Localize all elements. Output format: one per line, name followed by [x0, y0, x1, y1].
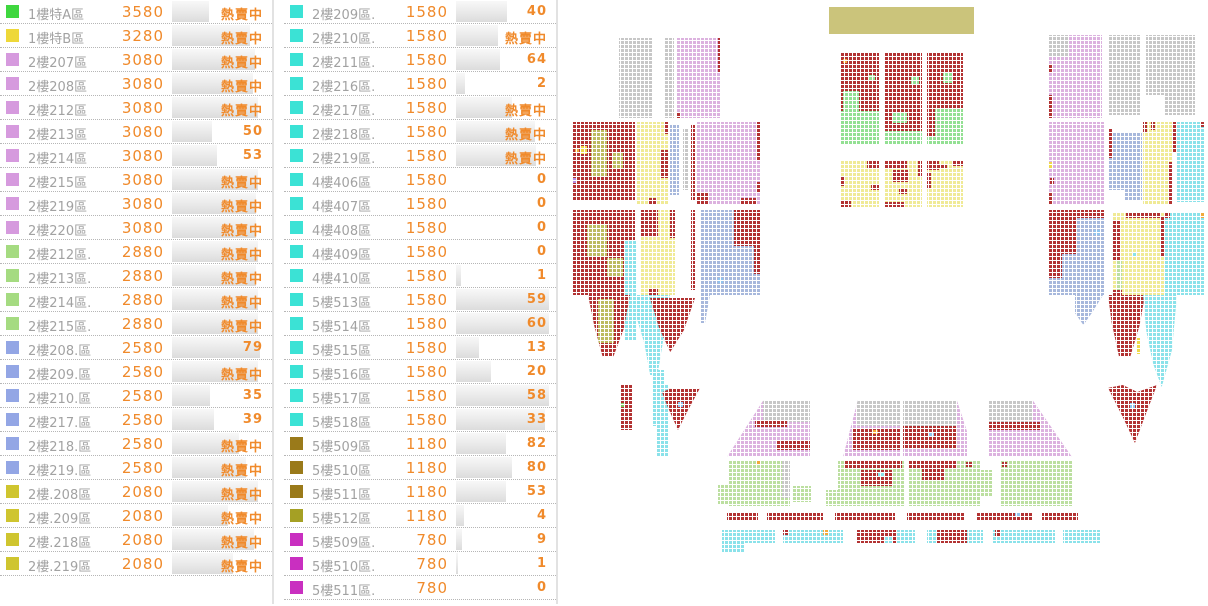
seat-block-overlay: [1200, 212, 1204, 218]
seat-block-overlay: [587, 224, 607, 256]
seat-block-overlay: [893, 170, 909, 182]
seat-block-overlay: [937, 530, 967, 543]
seat-block[interactable]: [677, 38, 721, 118]
seat-selection-page: { "colors":{ "swatch":{ "green":"#3fd73f…: [0, 0, 1208, 606]
seat-block[interactable]: [700, 210, 760, 295]
seat-block-overlay: [1169, 162, 1173, 205]
seat-block[interactable]: [1137, 338, 1141, 354]
seat-block-overlay: [613, 152, 623, 168]
seat-block-overlay: [1015, 512, 1020, 517]
seat-block-overlay: [1112, 290, 1122, 295]
seat-block-overlay: [1200, 122, 1205, 127]
seat-block[interactable]: [722, 530, 775, 543]
seat-block-overlay: [1151, 122, 1155, 130]
seat-block-overlay: [1048, 210, 1105, 218]
seat-block-overlay: [607, 258, 623, 276]
seat-block-overlay: [873, 430, 878, 434]
seat-block-overlay: [718, 38, 721, 72]
seat-block-overlay: [1048, 95, 1052, 118]
seat-block-overlay: [734, 210, 760, 246]
seat-block[interactable]: [691, 210, 695, 290]
seat-block-overlay: [1094, 230, 1100, 235]
seat-block-overlay: [660, 150, 668, 178]
seat-block[interactable]: [620, 385, 632, 430]
seat-block[interactable]: [908, 460, 980, 506]
seat-block[interactable]: [841, 160, 879, 207]
seat-block[interactable]: [980, 470, 992, 496]
seat-block[interactable]: [841, 53, 879, 144]
seat-block[interactable]: [793, 486, 811, 502]
seat-block-overlay: [843, 59, 847, 63]
seat-block[interactable]: [1108, 385, 1157, 443]
seat-block-overlay: [908, 460, 956, 468]
seat-block[interactable]: [826, 490, 838, 506]
seat-block-overlay: [903, 426, 957, 448]
seat-block[interactable]: [1108, 128, 1113, 158]
seat-block[interactable]: [927, 160, 963, 207]
seat-block-overlay: [741, 198, 757, 205]
seat-block[interactable]: [1146, 35, 1195, 115]
seat-block[interactable]: [670, 125, 679, 195]
seat-block-overlay: [823, 530, 828, 535]
seat-block[interactable]: [619, 38, 653, 118]
seat-block-overlay: [1146, 95, 1164, 115]
seat-block[interactable]: [927, 53, 963, 144]
seat-block-overlay: [678, 402, 683, 407]
seat-block-overlay: [573, 178, 577, 183]
seat-block-overlay: [869, 75, 875, 81]
seat-block[interactable]: [767, 512, 823, 520]
seat-block-overlay: [783, 530, 788, 535]
seat-block[interactable]: [838, 460, 905, 506]
seat-block[interactable]: [927, 530, 983, 543]
seat-block-overlay: [755, 420, 787, 427]
seat-block[interactable]: [783, 530, 843, 543]
seat-block[interactable]: [718, 484, 728, 504]
seat-block-overlay: [1050, 178, 1054, 184]
seat-block-overlay: [664, 122, 668, 134]
seat-block-overlay: [927, 172, 931, 188]
seat-block-overlay: [903, 400, 957, 426]
seat-block-overlay: [841, 200, 851, 207]
seat-block[interactable]: [1048, 122, 1105, 205]
seat-block-overlay: [756, 460, 761, 464]
seat-block[interactable]: [700, 295, 710, 323]
seat-block[interactable]: [727, 400, 810, 457]
seat-block-overlay: [620, 403, 624, 407]
seat-block-overlay: [718, 278, 723, 283]
seat-block-overlay: [988, 422, 1040, 430]
seat-block-overlay: [1164, 212, 1170, 218]
seat-block-overlay: [843, 91, 859, 111]
seat-block-overlay: [885, 131, 922, 144]
seat-block-overlay: [777, 440, 810, 450]
seat-block[interactable]: [993, 530, 1055, 543]
seat-block-overlay: [953, 160, 963, 166]
seat-block[interactable]: [697, 122, 760, 205]
seat-block-overlay: [885, 536, 893, 543]
seat-block[interactable]: [1108, 35, 1140, 115]
seat-block[interactable]: [1000, 460, 1072, 506]
seat-block[interactable]: [683, 128, 688, 190]
seat-block-overlay: [988, 400, 1032, 422]
seat-block-overlay: [966, 462, 972, 467]
seat-block[interactable]: [1143, 295, 1177, 387]
seat-block[interactable]: [903, 400, 967, 457]
seat-block[interactable]: [665, 38, 674, 118]
seat-block[interactable]: [640, 210, 675, 295]
seat-block[interactable]: [722, 543, 744, 552]
seat-block-overlay: [575, 148, 579, 152]
seat-block-overlay: [670, 210, 675, 238]
seat-block-overlay: [677, 112, 681, 118]
seat-block-overlay: [754, 246, 760, 274]
seat-block[interactable]: [907, 512, 965, 520]
seat-block-overlay: [1002, 462, 1007, 467]
seat-block[interactable]: [897, 530, 915, 543]
venue-seat-map: [0, 0, 1208, 606]
seat-block[interactable]: [691, 125, 695, 201]
seat-block[interactable]: [843, 400, 900, 457]
seat-block-overlay: [756, 122, 760, 160]
seat-block[interactable]: [1048, 35, 1102, 118]
seat-block-overlay: [943, 73, 953, 83]
seat-block-overlay: [860, 470, 892, 486]
seat-block[interactable]: [835, 512, 895, 520]
seat-block-overlay: [648, 198, 656, 205]
seat-block[interactable]: [885, 160, 922, 207]
seat-block-overlay: [1130, 403, 1135, 408]
stage: [829, 7, 974, 34]
seat-block-overlay: [844, 460, 902, 469]
seat-block-overlay: [885, 202, 905, 207]
seat-block[interactable]: [857, 530, 897, 543]
seat-block[interactable]: [1176, 122, 1205, 202]
seat-block-overlay: [1126, 212, 1160, 218]
seat-block-overlay: [756, 182, 760, 192]
seat-block-overlay: [598, 299, 614, 343]
seat-block[interactable]: [588, 295, 630, 357]
seat-block[interactable]: [1108, 132, 1142, 200]
seat-block-overlay: [871, 184, 879, 190]
seat-block-overlay: [927, 160, 939, 170]
seat-block-overlay: [1048, 218, 1076, 254]
seat-block[interactable]: [885, 53, 922, 144]
seat-block[interactable]: [977, 512, 1033, 520]
seat-block-overlay: [841, 176, 845, 186]
seat-block[interactable]: [1112, 212, 1164, 295]
seat-block-overlay: [922, 468, 944, 480]
seat-block-overlay: [929, 432, 934, 437]
seat-block-overlay: [911, 77, 919, 85]
seat-block-overlay: [1048, 254, 1062, 278]
seat-block-overlay: [841, 111, 879, 144]
seat-block-overlay: [885, 160, 907, 168]
seat-block[interactable]: [636, 122, 668, 205]
seat-block[interactable]: [727, 512, 758, 520]
seat-block[interactable]: [1063, 530, 1100, 543]
seat-block-overlay: [697, 192, 709, 205]
seat-block-overlay: [1112, 220, 1120, 260]
seat-block[interactable]: [988, 400, 1072, 457]
seat-block-overlay: [1116, 260, 1122, 290]
seat-block-overlay: [1048, 65, 1052, 73]
seat-block[interactable]: [1048, 210, 1105, 295]
seat-block-overlay: [581, 146, 587, 154]
seat-block-overlay: [1048, 35, 1068, 57]
seat-block[interactable]: [728, 460, 790, 506]
seat-block[interactable]: [573, 122, 635, 200]
seat-block-overlay: [857, 400, 900, 426]
seat-block-overlay: [763, 400, 810, 422]
seat-block-overlay: [1048, 192, 1052, 205]
seat-block[interactable]: [624, 240, 636, 340]
seat-block-overlay: [640, 210, 658, 236]
seat-block-overlay: [927, 137, 963, 144]
seat-block[interactable]: [1042, 512, 1078, 520]
seat-block-overlay: [1132, 252, 1137, 256]
seat-block[interactable]: [1164, 212, 1204, 295]
seat-block-overlay: [1048, 162, 1052, 168]
seat-block-overlay: [782, 460, 790, 498]
seat-block-overlay: [878, 472, 884, 477]
seat-block-overlay: [1143, 122, 1147, 132]
seat-block-overlay: [591, 130, 607, 176]
seat-block[interactable]: [1075, 295, 1103, 325]
seat-block-overlay: [1108, 190, 1124, 200]
seat-block-overlay: [867, 160, 879, 168]
seat-block-overlay: [918, 160, 922, 176]
seat-block-overlay: [939, 164, 947, 168]
seat-block-overlay: [899, 188, 907, 194]
seat-block-overlay: [893, 113, 907, 123]
seat-block[interactable]: [1143, 122, 1173, 205]
seat-block-overlay: [995, 530, 1001, 536]
seat-block-overlay: [648, 288, 658, 295]
